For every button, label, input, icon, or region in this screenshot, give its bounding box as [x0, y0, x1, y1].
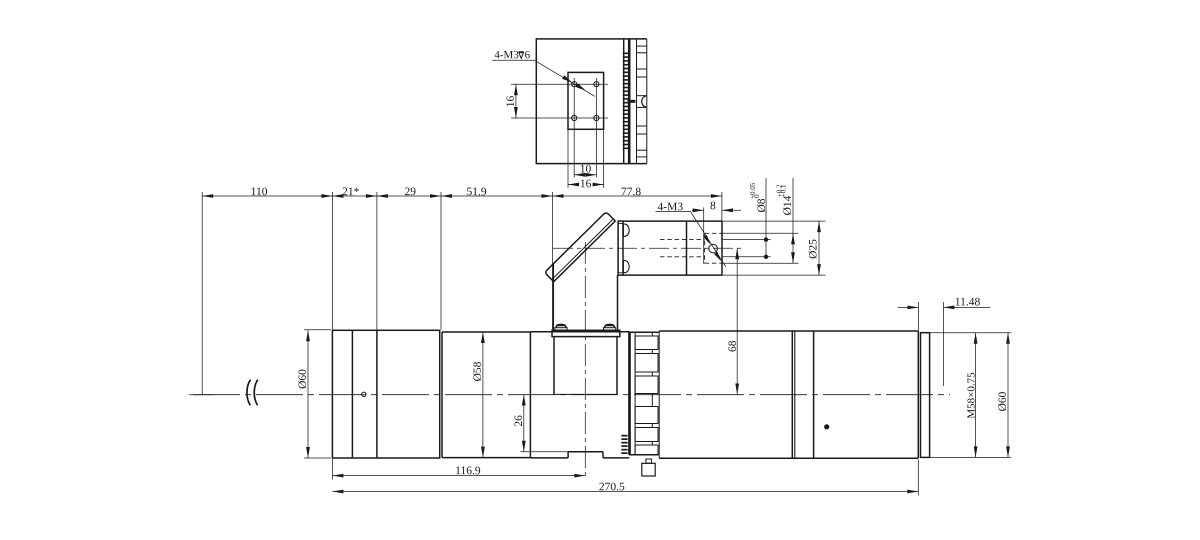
svg-text:Ø25: Ø25: [808, 239, 820, 259]
svg-text:M58×0.75: M58×0.75: [965, 372, 977, 419]
svg-text:10: 10: [580, 163, 592, 175]
svg-text:16: 16: [580, 178, 592, 190]
svg-text:51.9: 51.9: [466, 186, 486, 198]
svg-text:8: 8: [710, 200, 716, 212]
svg-text:+0.1: +0.1: [779, 184, 787, 197]
svg-text:110: 110: [251, 186, 268, 198]
svg-text:77.8: 77.8: [621, 186, 641, 198]
svg-text:Ø8: Ø8: [756, 198, 768, 212]
svg-text:0: 0: [753, 194, 761, 198]
svg-text:270.5: 270.5: [599, 481, 625, 493]
svg-text:4-M3: 4-M3: [494, 49, 519, 61]
svg-text:Ø60: Ø60: [297, 369, 309, 389]
svg-text:16: 16: [505, 96, 517, 108]
svg-text:68: 68: [727, 340, 739, 352]
svg-text:Ø14: Ø14: [782, 195, 794, 215]
svg-text:6: 6: [525, 49, 531, 61]
svg-text:29: 29: [404, 186, 416, 198]
svg-text:116.9: 116.9: [455, 465, 481, 477]
svg-text:11.48: 11.48: [955, 296, 981, 308]
svg-text:26: 26: [513, 415, 525, 427]
svg-text:Ø60: Ø60: [997, 391, 1009, 411]
svg-text:21*: 21*: [342, 186, 360, 198]
svg-text:Ø58: Ø58: [472, 361, 484, 381]
